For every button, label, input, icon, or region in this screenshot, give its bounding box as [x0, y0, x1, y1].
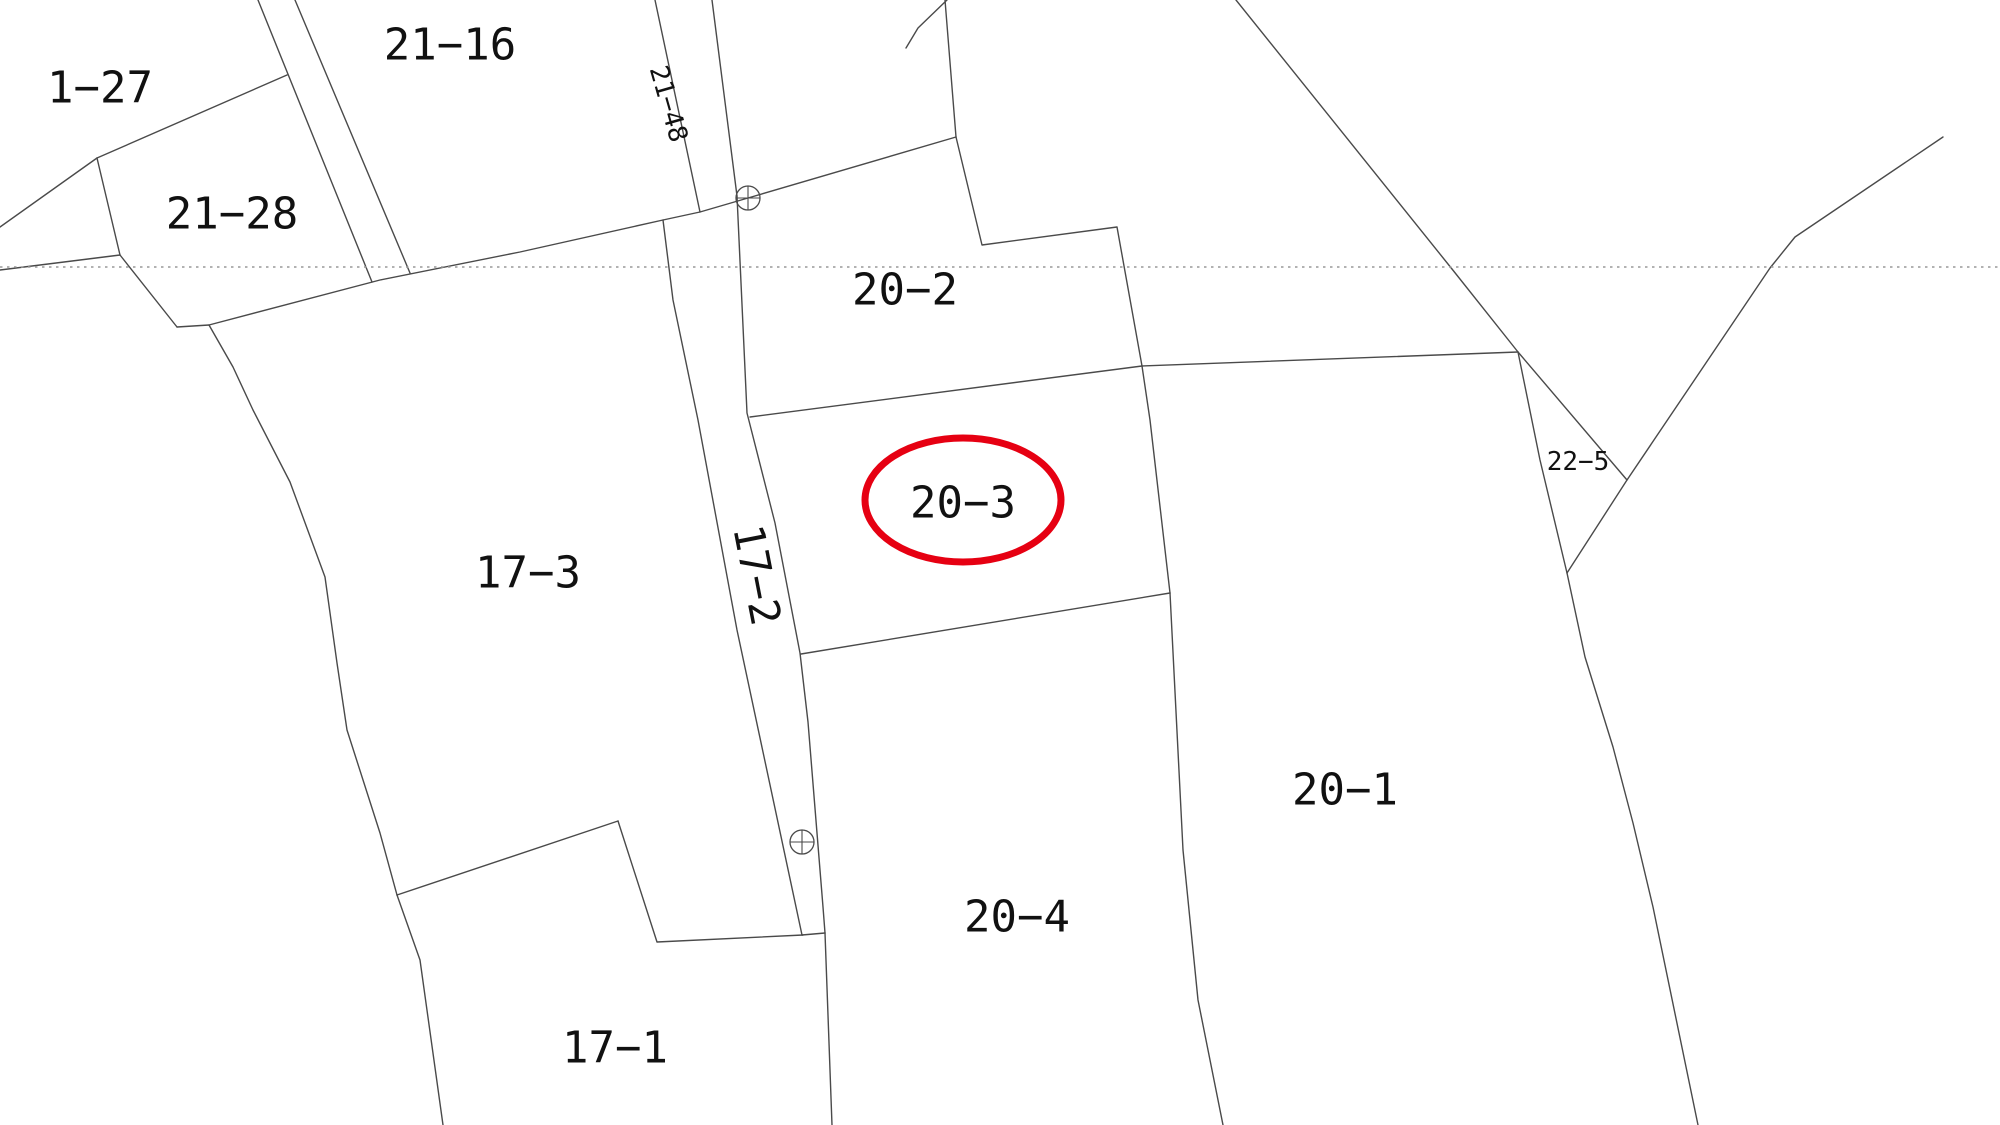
parcel-boundary-b20-3-right — [1142, 366, 1170, 593]
parcel-boundary-long-diagonal-sw-ne — [1567, 137, 1943, 573]
parcel-label-21-28: 21−28 — [166, 189, 298, 240]
parcel-boundary-strip-17-2-jog — [802, 933, 825, 935]
map-canvas: 1−2721−1621−2821−4820−220−317−317−222−52… — [0, 0, 2000, 1125]
parcel-label-17-1: 17−1 — [562, 1023, 668, 1074]
parcel-boundary-b20-2-notch — [956, 137, 1142, 366]
parcel-boundary-b17-1-top — [397, 821, 618, 895]
parcel-labels-layer: 1−2721−1621−2821−4820−220−317−317−222−52… — [47, 20, 1609, 1074]
parcel-label-20-2: 20−2 — [852, 265, 958, 316]
parcel-label-1-27: 1−27 — [47, 63, 153, 114]
parcel-boundary-top-sliver — [906, 0, 947, 48]
parcel-label-22-5: 22−5 — [1547, 447, 1610, 477]
parcel-boundary-b17-1-right — [618, 821, 803, 942]
parcel-boundary-long-diagonal-ne — [1236, 0, 1627, 480]
parcel-label-21-48: 21−48 — [643, 62, 693, 146]
parcel-label-21-16: 21−16 — [384, 20, 516, 71]
parcel-boundary-b21-28-wedge — [120, 255, 177, 327]
parcel-boundary-b17-3-left — [209, 325, 397, 895]
survey-marker-lower-icon — [790, 830, 814, 854]
parcel-boundary-b21-27-21-28 — [0, 158, 97, 227]
parcel-label-20-3: 20−3 — [910, 478, 1016, 529]
parcel-boundary-b20-1-top — [1142, 352, 1518, 366]
parcel-boundary-strip-21-48-right — [712, 0, 737, 196]
parcel-boundary-b20-2-bottom — [750, 366, 1142, 417]
parcel-boundary-b21-28-left — [97, 158, 120, 255]
cadastral-map-page: 1−2721−1621−2821−4820−220−317−317−222−52… — [0, 0, 2000, 1125]
parcel-label-20-4: 20−4 — [964, 892, 1070, 943]
survey-markers-layer — [736, 186, 814, 854]
parcel-boundary-b20-4-right — [1170, 593, 1223, 1125]
parcel-label-20-1: 20−1 — [1292, 765, 1398, 816]
parcel-label-17-3: 17−3 — [475, 548, 581, 599]
parcel-boundary-left-edge-line — [0, 255, 120, 270]
parcel-boundary-b20-3-bottom — [801, 593, 1170, 654]
parcel-boundary-b17-1-left — [397, 895, 443, 1125]
survey-marker-upper-icon — [736, 186, 760, 210]
parcel-boundary-below-strip — [825, 933, 832, 1125]
parcel-boundary-b21-16-right — [945, 0, 956, 137]
parcel-boundary-b20-1-right — [1567, 573, 1698, 1125]
